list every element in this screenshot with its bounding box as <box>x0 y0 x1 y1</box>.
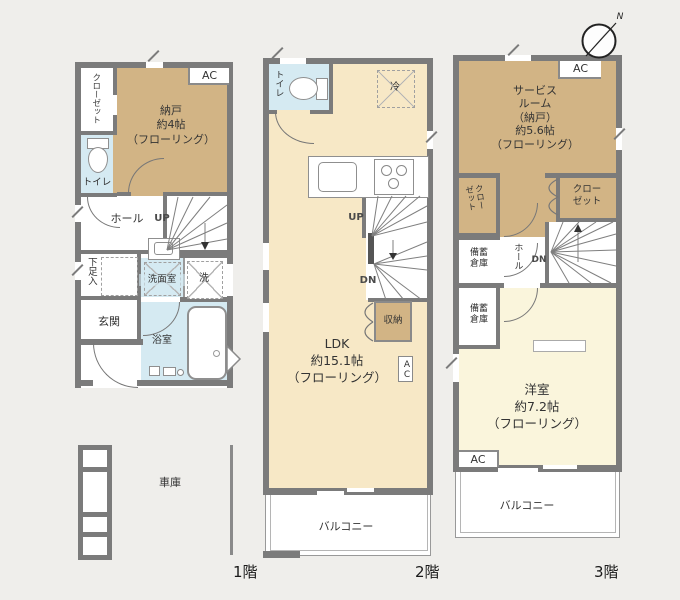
floor-label-1f: 1階 <box>233 561 258 582</box>
stove-burner-icon <box>381 165 392 176</box>
label-stock-storage-1: 備蓄 倉庫 <box>459 248 499 271</box>
sliding-door-opening <box>543 465 577 469</box>
label-balcony-3f: バルコニー <box>477 499 577 513</box>
label-bath: 浴室 <box>139 334 185 347</box>
label-storage-2f: 収納 <box>374 315 412 327</box>
garage-boundary-line <box>230 445 233 555</box>
label-washroom: 洗面室 <box>139 274 185 286</box>
label-toilet-2f: トイレ <box>273 70 283 97</box>
bath-tap-icon <box>163 367 176 376</box>
stove-burner-icon <box>396 165 407 176</box>
wall-segment <box>263 551 300 558</box>
label-garage: 車庫 <box>140 476 200 490</box>
garage-shutter-cell <box>83 450 107 467</box>
bifold-door-icon <box>538 178 559 217</box>
counter-niche <box>533 340 586 352</box>
bathtub-drain-icon <box>213 350 220 357</box>
compass-north-label: N <box>614 12 626 24</box>
stove-icon <box>374 159 414 195</box>
wall-segment <box>427 58 433 495</box>
label-stock-storage-2: 備蓄 倉庫 <box>459 304 499 327</box>
label-washer: 洗 <box>192 272 216 285</box>
label-closet-3f-left: クロー ゼット <box>462 184 485 212</box>
label-dn-2f: DN <box>356 275 380 286</box>
window-tick <box>147 50 159 62</box>
label-western-room: 洋室 約7.2帖 （フローリング） <box>467 382 607 433</box>
wall-segment <box>459 233 500 240</box>
bathtub-icon <box>187 306 227 380</box>
wall-segment <box>81 296 141 300</box>
wall-segment <box>496 173 500 237</box>
window-opening <box>263 303 269 332</box>
floor-label-3f: 3階 <box>594 561 619 582</box>
garage-shutter-cell <box>83 517 107 532</box>
wall-segment <box>459 345 500 349</box>
label-balcony-2f: バルコニー <box>296 520 396 534</box>
sliding-door-opening <box>347 488 374 492</box>
label-toilet-1f: トイレ <box>81 177 113 189</box>
label-up-1f: UP <box>150 213 174 224</box>
ac-unit-label-3f-bottom: AC <box>459 450 499 467</box>
wall-segment <box>459 173 500 178</box>
label-ldk: LDK 約15.1帖 （フローリング） <box>267 336 407 387</box>
stairs-3f-icon <box>549 222 616 283</box>
window-opening <box>146 62 163 68</box>
wall-segment <box>178 254 227 258</box>
label-up-2f: UP <box>344 212 368 223</box>
window-opening <box>280 58 306 64</box>
floor-label-2f: 2階 <box>415 561 440 582</box>
shower-icon <box>177 369 184 376</box>
toilet-bowl-icon <box>289 77 318 100</box>
bay-window-icon <box>227 346 241 373</box>
floorplan-canvas: AC クローゼット 納戸 約4帖 （フローリング） トイレ ホール UP 下足入… <box>0 0 680 600</box>
window-opening <box>227 264 233 296</box>
wall-segment <box>616 55 622 472</box>
bath-stool-icon <box>149 366 160 376</box>
garage-shutter-cell <box>83 472 107 512</box>
garage-shutter-cell <box>83 537 107 555</box>
wall-segment <box>329 64 333 110</box>
wall-segment <box>263 58 269 495</box>
wall-segment <box>540 283 616 288</box>
label-shoe-storage: 下足入 <box>85 257 96 286</box>
label-service-room: サービス ルーム （納戸） 約5.6帖 （フローリング） <box>459 84 611 151</box>
shoe-cabinet-icon <box>101 257 138 296</box>
label-hall-1f: ホール <box>104 212 150 226</box>
label-dn-3f: DN <box>528 255 550 265</box>
label-hall-3f: ホール <box>512 243 522 270</box>
label-closet-3f-right: クロー ゼット <box>560 184 614 208</box>
stove-burner-icon <box>388 178 399 189</box>
wall-segment <box>163 192 227 196</box>
kitchen-sink-icon <box>318 162 357 192</box>
label-entrance: 玄関 <box>81 315 137 329</box>
label-closet-1f: クローゼット <box>90 73 100 124</box>
ac-unit-label-1f: AC <box>188 68 229 85</box>
label-fridge: 冷 <box>385 81 405 94</box>
label-nando: 納戸 約4帖 （フローリング） <box>112 104 230 147</box>
window-opening <box>263 243 269 270</box>
